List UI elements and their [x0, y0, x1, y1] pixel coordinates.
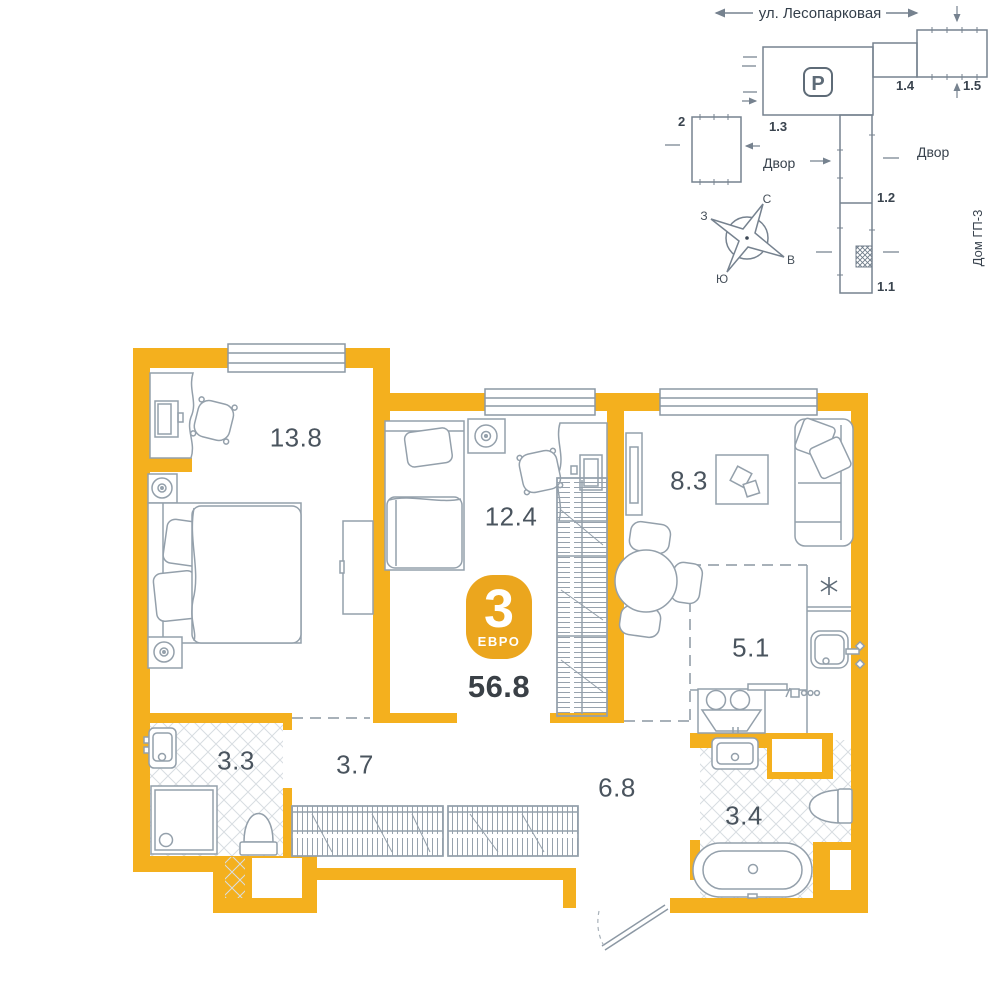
- bathtub: [693, 843, 812, 898]
- compass-south: Ю: [716, 272, 728, 286]
- house-name-label: Дом ГП-3: [970, 210, 985, 267]
- desk-bedroom1: [150, 373, 194, 458]
- entrance-door: [598, 905, 668, 950]
- compass-north: С: [763, 192, 772, 206]
- bathroom1-sink: [144, 728, 176, 768]
- yard-label-left: Двор: [763, 155, 796, 171]
- dresser-bedroom1: [340, 521, 373, 614]
- speaker-box-3: [468, 419, 505, 453]
- room-area-bathroom1: 3.3: [217, 746, 255, 777]
- total-area: 56.8: [468, 669, 530, 705]
- apartment-type-badge: 3 ЕВРО: [466, 575, 532, 659]
- room-area-kitchen: 5.1: [732, 633, 770, 664]
- room-area-bedroom2: 12.4: [485, 502, 538, 533]
- window-bedroom2: [485, 389, 595, 415]
- fridge-icon: [821, 577, 837, 595]
- stove-unit: [698, 684, 819, 733]
- room-area-bedroom1: 13.8: [270, 423, 323, 454]
- windows: [228, 344, 817, 415]
- floorplan-canvas: ул. Лесопарковая P 1.3 1.4 1.5 2 1.2 1.1…: [0, 0, 1000, 1000]
- window-living: [660, 389, 817, 415]
- wardrobe-bedroom2: [557, 478, 607, 716]
- yard-label-right: Двор: [917, 144, 950, 160]
- label-building-12: 1.2: [877, 190, 895, 205]
- rooms-count: 3: [484, 585, 514, 633]
- label-building-14: 1.4: [896, 78, 915, 93]
- site-building-15: [917, 30, 987, 77]
- speaker-box-2: [148, 637, 182, 668]
- chair-bedroom1: [190, 396, 238, 444]
- layout-type: ЕВРО: [478, 634, 521, 649]
- room-area-bathroom2: 3.4: [725, 801, 763, 832]
- room-area-living: 8.3: [670, 466, 708, 497]
- double-bed: [148, 503, 301, 643]
- label-building-2: 2: [678, 114, 685, 129]
- apartment-location-marker: [856, 246, 872, 267]
- room-area-hallway: 3.7: [336, 750, 374, 781]
- site-plan: ул. Лесопарковая P 1.3 1.4 1.5 2 1.2 1.1…: [665, 5, 987, 294]
- street-label: ул. Лесопарковая: [759, 5, 882, 22]
- compass-east: В: [787, 253, 795, 267]
- room-area-corridor: 6.8: [598, 773, 636, 804]
- speaker-box-1: [148, 474, 177, 503]
- site-building-2: [692, 117, 741, 182]
- parking-label: P: [811, 73, 824, 95]
- compass-rose: [711, 204, 784, 272]
- sofa: [794, 417, 853, 546]
- label-building-15: 1.5: [963, 78, 981, 93]
- window-bedroom1: [228, 344, 345, 372]
- single-bed: [385, 421, 464, 570]
- site-building-14: [873, 43, 917, 77]
- tv-unit: [626, 433, 642, 515]
- hall-wardrobe: [292, 806, 578, 856]
- dining-table: [615, 550, 677, 612]
- coffee-table: [716, 455, 768, 504]
- shower-cabin: [151, 786, 217, 854]
- label-building-11: 1.1: [877, 279, 895, 294]
- compass-west: З: [700, 209, 707, 223]
- chair-bedroom2: [517, 448, 563, 495]
- label-building-13: 1.3: [769, 119, 787, 134]
- floorplan-drawing: ул. Лесопарковая P 1.3 1.4 1.5 2 1.2 1.1…: [0, 0, 1000, 1000]
